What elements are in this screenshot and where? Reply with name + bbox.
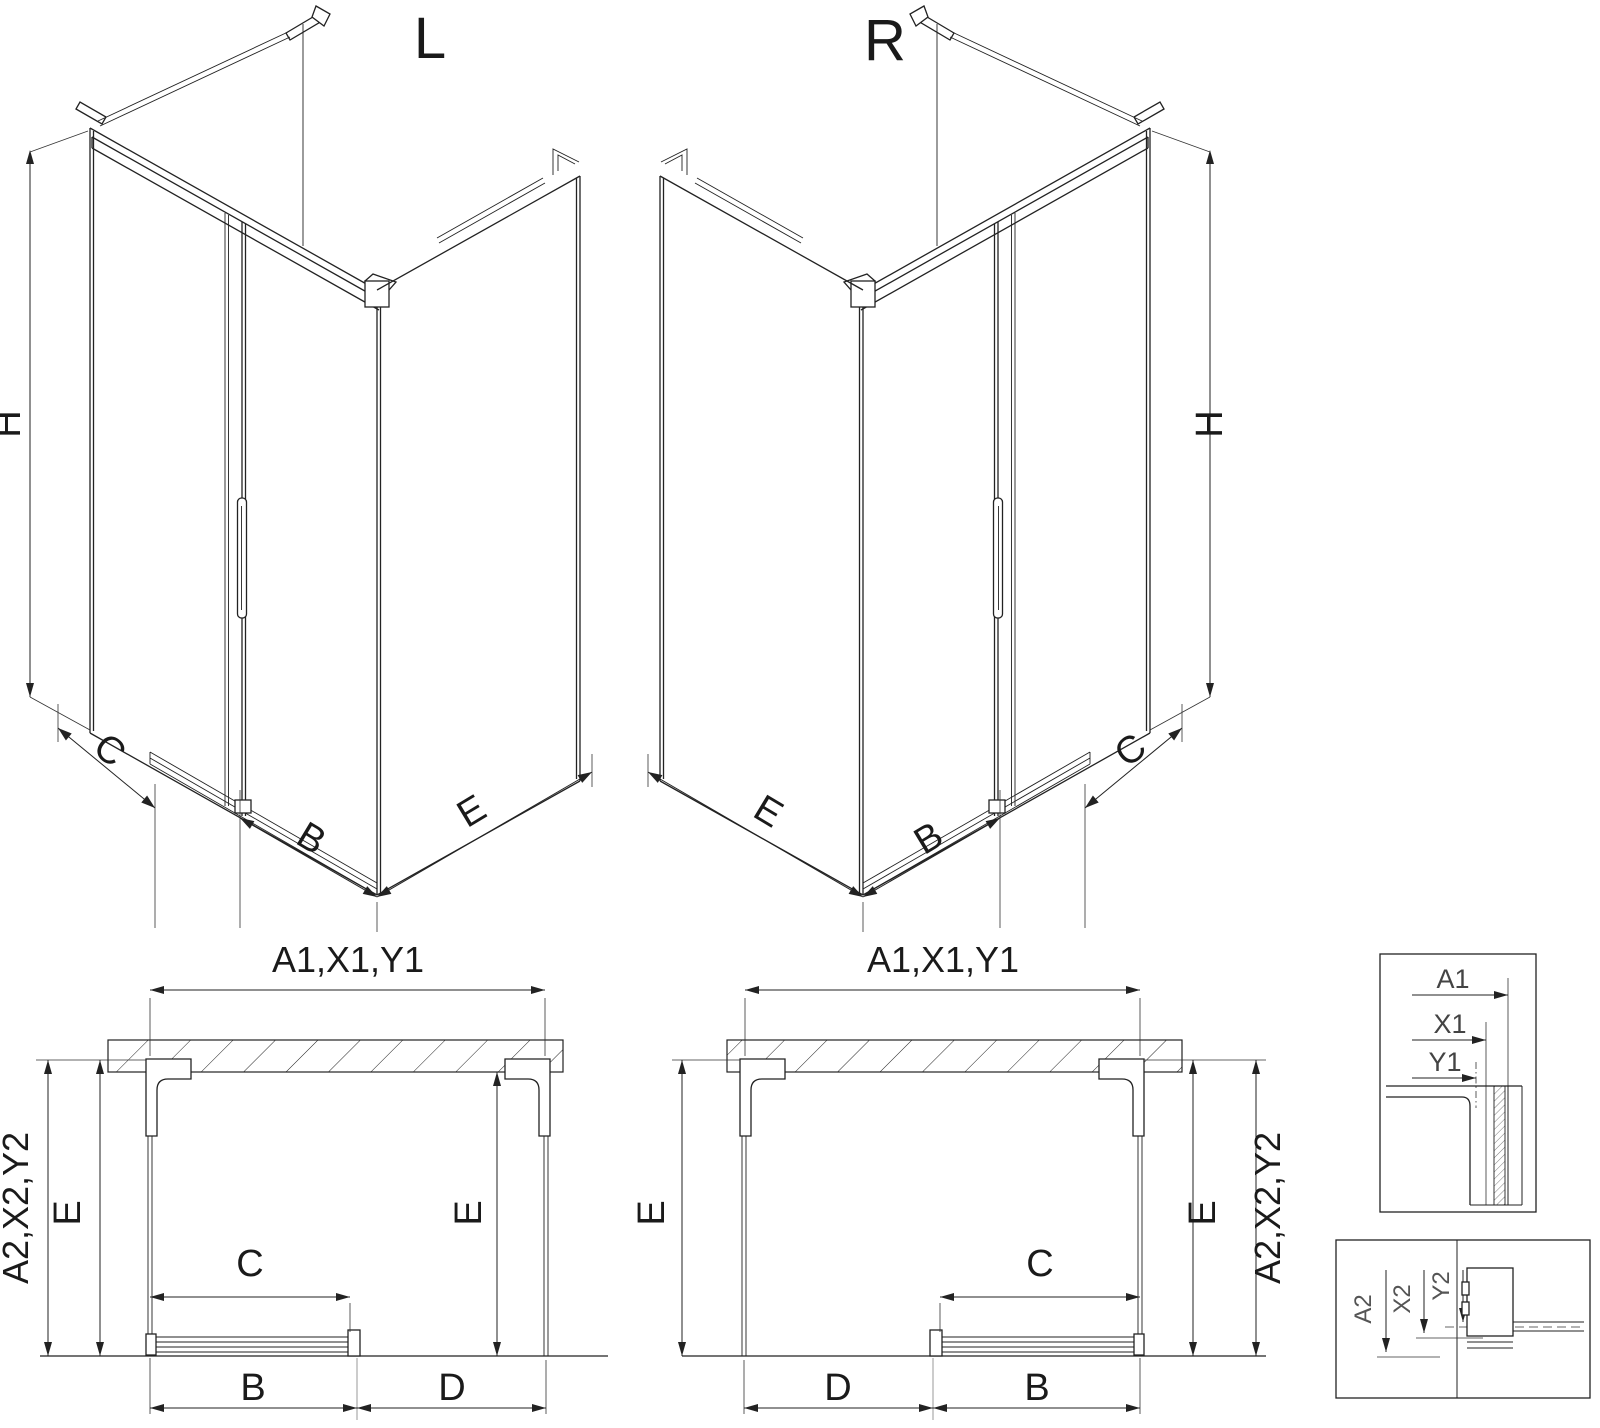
plan-right-opening-dim-label: C xyxy=(1026,1243,1053,1285)
iso-view-right: R H C B E xyxy=(648,6,1231,932)
detail-box-top: A1 X1 Y1 xyxy=(1380,954,1536,1212)
iso-right-geometry xyxy=(648,6,1214,932)
plan-left-top-dim-label: A1,X1,Y1 xyxy=(272,939,424,980)
detail-bottom-x2-label: X2 xyxy=(1389,1284,1416,1313)
technical-drawing-page: L H C B E R H C B E xyxy=(0,0,1600,1428)
plan-left-outer-dim-label: A2,X2,Y2 xyxy=(0,1132,36,1284)
detail-bottom-a2-label: A2 xyxy=(1350,1294,1377,1323)
detail-top-y1-label: Y1 xyxy=(1428,1047,1461,1077)
iso-left-dim-fixed-label: C xyxy=(86,726,133,776)
iso-right-dim-side-label: E xyxy=(746,787,789,836)
plan-left-e-left-label: E xyxy=(47,1200,89,1225)
iso-left-title: L xyxy=(414,6,446,71)
plan-view-right: A1,X1,Y1 A2,X2,Y2 E E C B D xyxy=(631,939,1288,1420)
plan-right-top-dim-label: A1,X1,Y1 xyxy=(867,939,1019,980)
plan-view-left: A1,X1,Y1 A2,X2,Y2 E E C B D xyxy=(0,939,608,1420)
detail-top-a1-label: A1 xyxy=(1436,964,1469,994)
detail-top-x1-label: X1 xyxy=(1433,1009,1466,1039)
iso-left-dim-side-label: E xyxy=(450,787,493,836)
plan-right-panel-dim-label: D xyxy=(824,1367,851,1409)
plan-right-outer-dim-label: A2,X2,Y2 xyxy=(1247,1132,1288,1284)
plan-left-opening-dim-label: C xyxy=(236,1243,263,1285)
iso-right-dim-door-label: B xyxy=(907,814,950,863)
plan-right-e-right-label: E xyxy=(1182,1200,1224,1225)
iso-left-dim-door-label: B xyxy=(289,814,332,863)
iso-right-dim-fixed-label: C xyxy=(1107,726,1154,776)
shower-enclosure-drawing: L H C B E R H C B E xyxy=(0,0,1600,1423)
plan-left-door-dim-label: B xyxy=(240,1367,265,1409)
iso-right-title: R xyxy=(864,8,906,73)
iso-right-dim-height-label: H xyxy=(1189,410,1231,437)
plan-right-door-dim-label: B xyxy=(1024,1367,1049,1409)
iso-view-left: L H C B E xyxy=(0,6,592,932)
detail-box-bottom: A2 X2 Y2 xyxy=(1336,1240,1590,1398)
iso-left-geometry xyxy=(26,6,592,932)
plan-left-e-right-label: E xyxy=(448,1200,490,1225)
iso-left-dim-height-label: H xyxy=(0,410,29,437)
plan-left-panel-dim-label: D xyxy=(438,1367,465,1409)
plan-right-e-left-label: E xyxy=(631,1200,673,1225)
detail-bottom-y2-label: Y2 xyxy=(1428,1271,1455,1300)
